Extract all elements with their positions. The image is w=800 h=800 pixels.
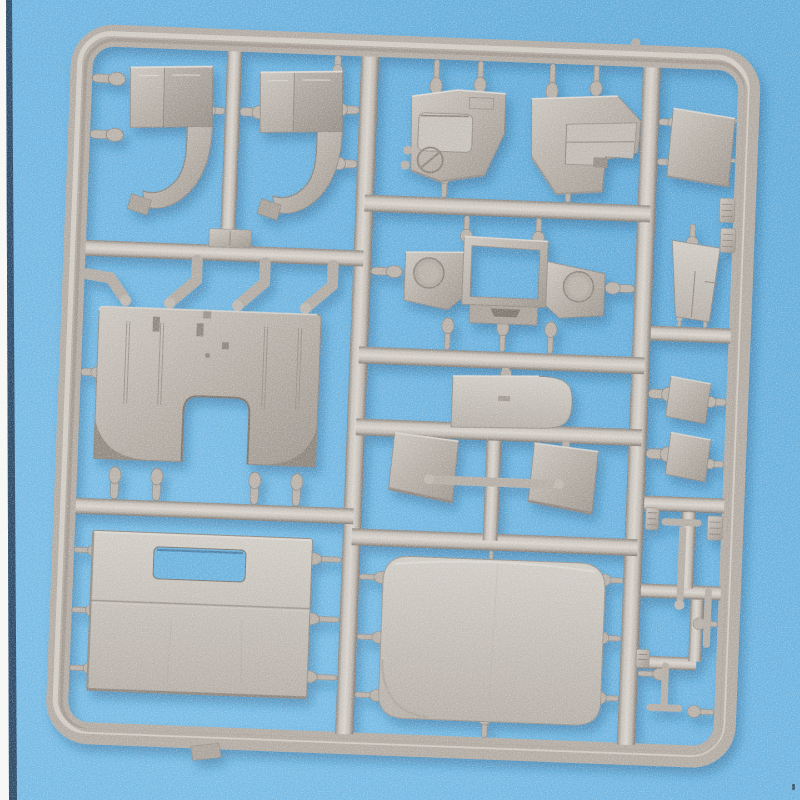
photo-grain	[0, 0, 800, 800]
photo-frame	[0, 0, 800, 800]
sprue-photo	[0, 0, 800, 800]
